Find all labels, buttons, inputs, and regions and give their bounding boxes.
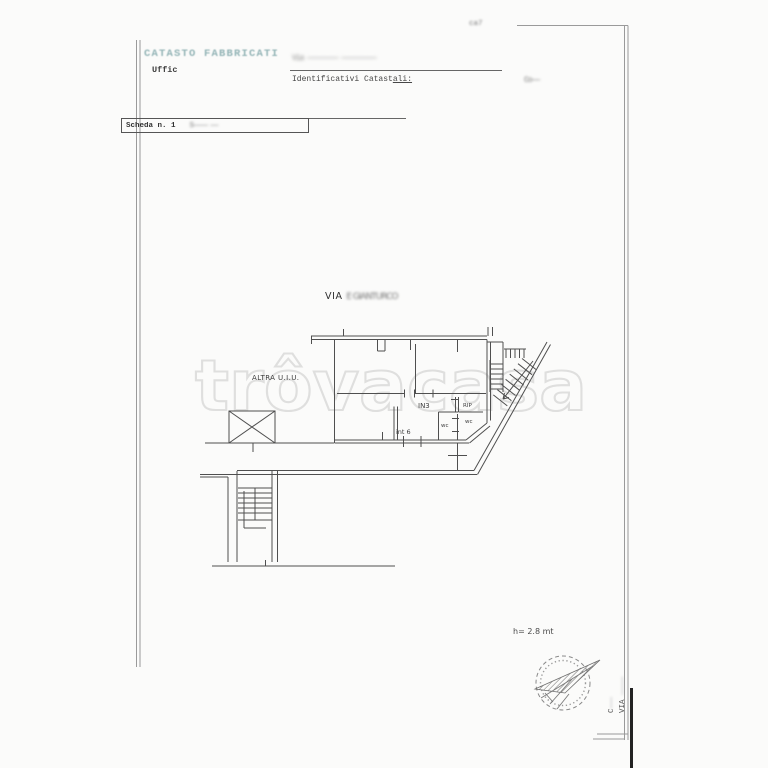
cadastral-identifiers-label-b: ali:: [393, 75, 412, 84]
margin-note-line1-tail: ———: [608, 698, 616, 709]
comune-redacted: Co——: [524, 76, 539, 85]
room-label-wc-left: wc: [441, 423, 449, 429]
watermark-text: trôvacasa: [195, 345, 587, 427]
margin-note-line2-tail: —————: [619, 677, 627, 695]
room-label-rip: RIP: [463, 403, 472, 409]
surveyor-stamp-logo: [523, 646, 608, 716]
margin-note-line2-prefix: VIA: [619, 699, 627, 713]
street-caption-prefix: VIA: [325, 291, 343, 302]
scheda-label: Scheda n. 1: [126, 122, 176, 130]
office-label: Uffic: [152, 65, 178, 75]
address-line-redacted: Via ———————— —————————: [292, 54, 512, 63]
room-label-in3: IN3: [418, 402, 430, 410]
scheda-box: Scheda n. 1 S———— ——: [121, 118, 309, 133]
scheda-redacted: S———— ——: [190, 122, 218, 130]
unit-label-int6: int 6: [396, 428, 411, 436]
entry-mark: [448, 443, 467, 471]
stairwell-lower: [200, 471, 395, 566]
page-mark: ca7: [469, 20, 483, 28]
margin-note-vertical: C——— VIA —————: [607, 593, 633, 713]
address-rule: [290, 70, 502, 71]
altra-uiu-label: ALTRA U.I.U.: [252, 374, 299, 382]
street-caption: VIA E GIANTURCO: [325, 291, 398, 302]
registry-title: CATASTO FABBRICATI: [144, 48, 279, 60]
floor-plan-drawing: trôvacasa: [0, 0, 768, 768]
scanned-cadastral-document: { "document": { "page_mark": "ca7", "reg…: [0, 0, 768, 768]
margin-note-line2: VIA —————: [618, 593, 629, 713]
scheda-extension-line: [309, 118, 406, 119]
cadastral-identifiers-label-a: Identificativi Catast: [292, 75, 393, 84]
cadastral-identifiers-label: Identificativi Catastali:: [292, 75, 412, 84]
margin-note-line1-prefix: C: [608, 708, 616, 713]
room-label-wc-right: wc: [465, 419, 473, 425]
margin-note-line1: C———: [607, 593, 618, 713]
height-note: h= 2.8 mt: [513, 627, 554, 636]
street-caption-redacted: E GIANTURCO: [346, 292, 397, 302]
